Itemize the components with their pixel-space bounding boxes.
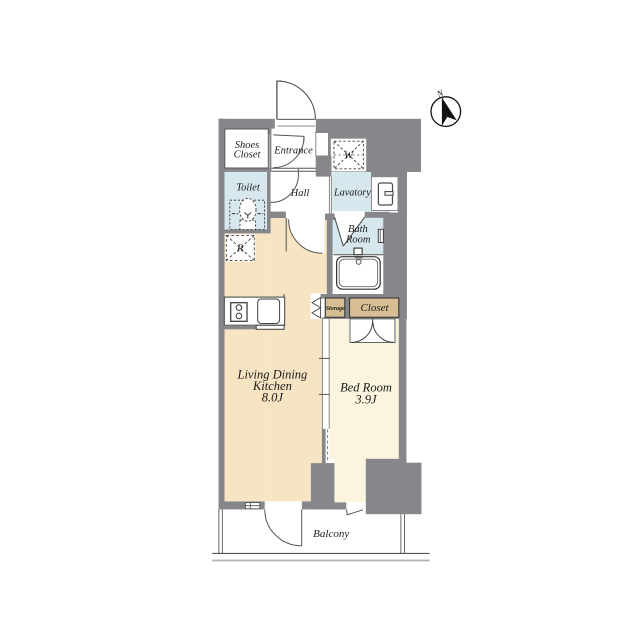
svg-text:Closet: Closet: [360, 302, 389, 314]
svg-text:Balcony: Balcony: [313, 528, 349, 540]
svg-text:Lavatory: Lavatory: [333, 188, 371, 199]
svg-text:R: R: [236, 243, 244, 255]
svg-text:W: W: [344, 149, 354, 161]
svg-text:Hall: Hall: [290, 188, 310, 199]
svg-text:Storage: Storage: [326, 306, 345, 312]
svg-text:Closet: Closet: [234, 150, 262, 161]
svg-text:Toilet: Toilet: [236, 182, 261, 193]
svg-text:3.9J: 3.9J: [354, 393, 378, 407]
svg-text:Room: Room: [345, 234, 371, 245]
svg-text:8.0J: 8.0J: [262, 391, 285, 405]
svg-text:Entrance: Entrance: [273, 145, 313, 156]
